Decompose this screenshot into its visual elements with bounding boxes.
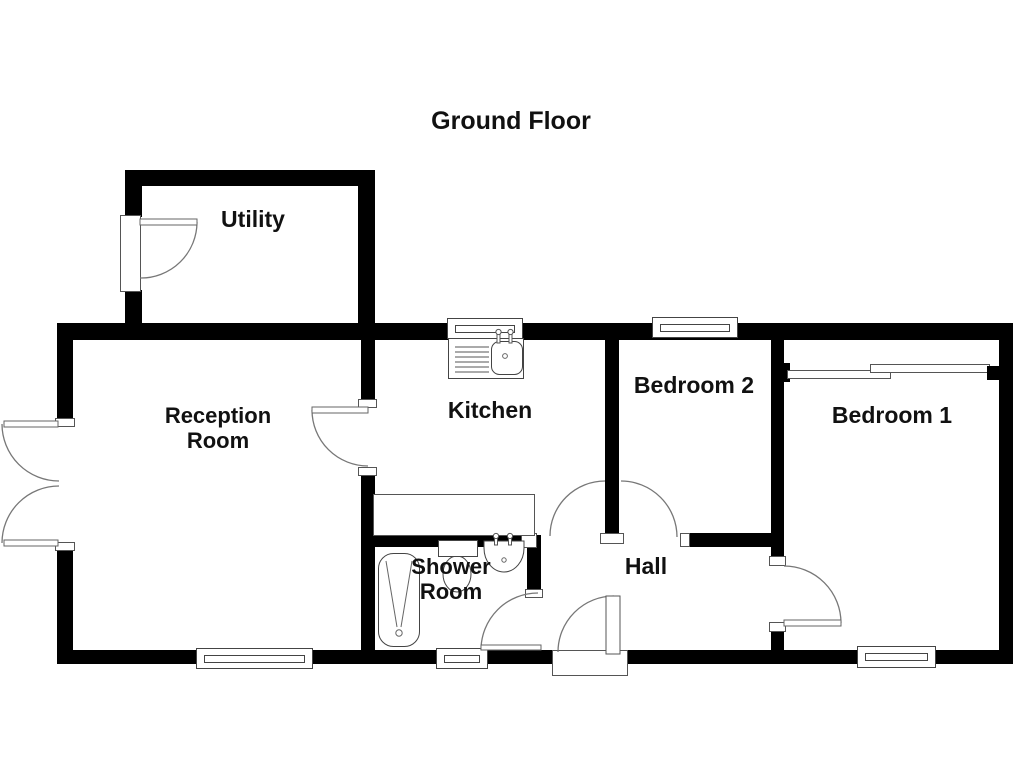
wall-right-exterior	[999, 323, 1013, 664]
wall-reception-shower	[361, 475, 375, 650]
bath-drain	[396, 630, 402, 636]
door-leaf-french-bottom	[4, 540, 58, 546]
wall-utility-left-lower	[125, 290, 142, 323]
wall-bedroom2-bottom	[689, 533, 771, 547]
sink-bowl	[492, 342, 523, 375]
door-leaf-french-top	[4, 421, 58, 427]
wall-kitchen-bedroom2	[605, 340, 619, 533]
door-swing-icon-french-bottom	[2, 486, 59, 543]
jamb	[55, 418, 75, 427]
floor-plan: Ground Floor Utility Reception Room Kitc…	[0, 0, 1024, 768]
jamb	[600, 533, 624, 544]
door-swing-icon-french-top	[2, 424, 59, 481]
room-label-utility: Utility	[193, 206, 313, 232]
door-swing-icon-kitchen-hall	[550, 481, 605, 536]
wall-left-upper	[57, 323, 73, 425]
window-shower-room	[436, 648, 488, 669]
window-kitchen	[447, 318, 523, 339]
wall-reception-kitchen-upper	[361, 340, 375, 400]
wardrobe-wall-stub	[987, 366, 1000, 380]
room-label-hall: Hall	[596, 553, 696, 579]
door-swing-icon-reception	[312, 410, 368, 466]
door-swing-icon-utility	[140, 222, 197, 278]
door-leaf-utility	[140, 219, 197, 225]
jamb	[525, 589, 543, 598]
front-door-threshold	[552, 650, 628, 676]
room-label-bedroom2: Bedroom 2	[624, 372, 764, 398]
window-pane	[660, 324, 730, 332]
worktop-icon	[374, 495, 535, 536]
sink-unit-outline	[449, 339, 524, 379]
door-leaf-front	[606, 596, 620, 654]
sliding-wardrobe-icon	[870, 364, 990, 373]
utility-door-frame	[120, 215, 141, 292]
door-swing-icon-bedroom2	[621, 481, 677, 537]
window-reception	[196, 648, 313, 669]
drainer-lines	[455, 347, 489, 372]
sink-drain	[503, 354, 508, 359]
wall-utility-left-upper	[125, 170, 142, 217]
jamb	[358, 467, 377, 476]
window-bedroom1	[857, 646, 936, 668]
window-bedroom2	[652, 317, 738, 338]
wall-bedroom1-left-lower	[771, 632, 784, 650]
page-title: Ground Floor	[361, 108, 661, 134]
room-label-shower: Shower Room	[391, 554, 511, 604]
window-pane	[204, 655, 305, 663]
room-label-bedroom1: Bedroom 1	[822, 402, 962, 428]
jamb	[358, 399, 377, 408]
jamb	[769, 622, 786, 632]
jamb	[521, 533, 537, 548]
room-label-reception: Reception Room	[143, 403, 293, 453]
wall-utility-right	[358, 170, 375, 340]
door-swing-icon-bedroom1	[784, 566, 841, 623]
jamb	[769, 556, 786, 566]
jamb	[680, 533, 690, 547]
wall-utility-top	[125, 170, 375, 186]
room-label-kitchen: Kitchen	[420, 397, 560, 423]
window-pane	[455, 325, 515, 333]
window-pane	[865, 653, 928, 661]
jamb	[55, 542, 75, 551]
door-swing-icon-front	[558, 596, 614, 652]
window-pane	[444, 655, 480, 663]
wall-kitchen-shower	[361, 535, 521, 547]
wall-top-exterior	[57, 323, 1013, 340]
door-leaf-bedroom1	[784, 620, 841, 626]
wall-left-lower	[57, 543, 73, 664]
